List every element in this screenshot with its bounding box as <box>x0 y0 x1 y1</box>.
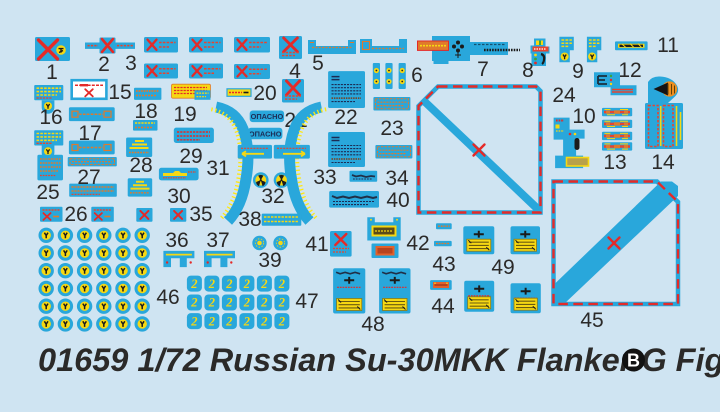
svg-text:B: B <box>627 351 640 371</box>
svg-text:2: 2 <box>243 296 250 310</box>
svg-text:43: 43 <box>432 253 455 276</box>
svg-text:01659 1/72 Russian Su-30MKK Fl: 01659 1/72 Russian Su-30MKK Flanker G Fi… <box>38 342 720 378</box>
svg-text:2: 2 <box>225 314 232 328</box>
svg-text:24: 24 <box>552 84 576 107</box>
svg-text:2: 2 <box>225 296 232 310</box>
svg-text:2: 2 <box>243 314 250 328</box>
svg-text:2: 2 <box>243 277 250 291</box>
svg-text:ОПАСНО: ОПАСНО <box>249 129 282 138</box>
svg-text:29: 29 <box>179 145 202 168</box>
svg-text:19: 19 <box>173 103 196 126</box>
svg-text:1: 1 <box>46 61 58 84</box>
svg-text:ОПАСНО: ОПАСНО <box>251 112 284 121</box>
svg-text:2: 2 <box>190 277 197 291</box>
svg-text:12: 12 <box>618 59 641 82</box>
svg-text:7: 7 <box>477 58 489 81</box>
svg-text:49: 49 <box>491 256 514 279</box>
svg-text:33: 33 <box>313 166 336 189</box>
svg-text:4: 4 <box>289 60 301 83</box>
svg-text:14: 14 <box>651 151 675 174</box>
svg-text:10: 10 <box>572 105 595 128</box>
svg-text:32: 32 <box>261 185 284 208</box>
svg-text:34: 34 <box>385 167 409 190</box>
svg-text:26: 26 <box>64 203 87 226</box>
svg-text:2: 2 <box>260 314 267 328</box>
svg-text:46: 46 <box>156 286 179 309</box>
svg-text:25: 25 <box>36 181 59 204</box>
svg-text:27: 27 <box>77 166 100 189</box>
svg-text:22: 22 <box>334 106 357 129</box>
svg-text:47: 47 <box>295 290 318 313</box>
svg-text:13: 13 <box>603 151 626 174</box>
svg-text:2: 2 <box>208 277 215 291</box>
svg-text:41: 41 <box>305 233 328 256</box>
svg-text:40: 40 <box>386 189 409 212</box>
svg-text:2: 2 <box>225 277 232 291</box>
svg-text:20: 20 <box>253 82 276 105</box>
svg-text:31: 31 <box>206 157 229 180</box>
svg-text:17: 17 <box>78 122 101 145</box>
svg-text:39: 39 <box>258 249 281 272</box>
svg-text:8: 8 <box>522 59 534 82</box>
svg-text:18: 18 <box>134 100 157 123</box>
svg-text:2: 2 <box>190 296 197 310</box>
svg-text:36: 36 <box>165 229 188 252</box>
svg-text:30: 30 <box>167 185 190 208</box>
svg-text:2: 2 <box>208 296 215 310</box>
svg-text:2: 2 <box>98 53 110 76</box>
svg-text:2: 2 <box>278 314 285 328</box>
svg-text:2: 2 <box>260 277 267 291</box>
svg-text:11: 11 <box>657 34 679 57</box>
svg-text:35: 35 <box>189 203 212 226</box>
svg-text:2: 2 <box>260 296 267 310</box>
svg-text:6: 6 <box>411 64 423 87</box>
svg-text:48: 48 <box>361 313 384 336</box>
svg-text:28: 28 <box>129 154 152 177</box>
svg-text:2: 2 <box>278 277 285 291</box>
svg-text:2: 2 <box>208 314 215 328</box>
svg-text:15: 15 <box>108 81 131 104</box>
svg-text:5: 5 <box>312 52 324 75</box>
svg-text:2: 2 <box>278 296 285 310</box>
svg-text:3: 3 <box>125 52 137 75</box>
svg-text:38: 38 <box>238 208 261 231</box>
svg-text:16: 16 <box>39 106 62 129</box>
svg-text:45: 45 <box>580 309 603 332</box>
svg-text:9: 9 <box>572 60 584 83</box>
svg-text:23: 23 <box>380 117 403 140</box>
svg-text:44: 44 <box>431 295 455 318</box>
svg-text:42: 42 <box>406 232 429 255</box>
svg-text:2: 2 <box>190 314 197 328</box>
svg-text:37: 37 <box>206 229 229 252</box>
